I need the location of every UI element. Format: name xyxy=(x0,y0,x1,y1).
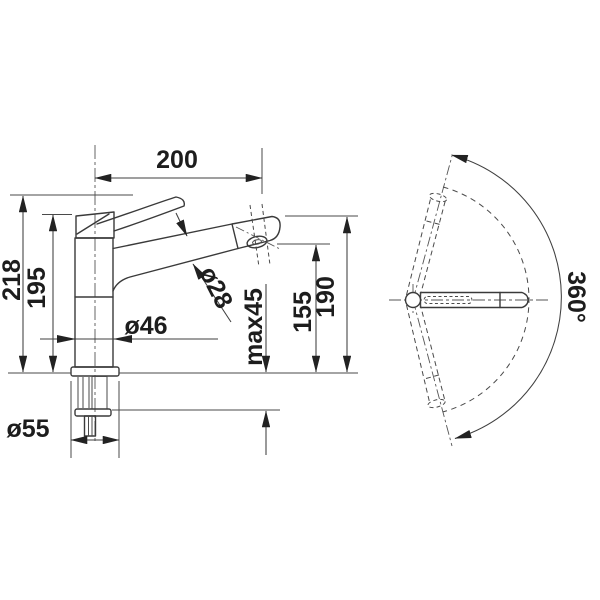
arrowhead xyxy=(57,335,76,343)
mounting-washer xyxy=(75,409,111,416)
drawing-page: 200 218 195 ø46 ø28 xyxy=(0,0,600,600)
dim-spout-reach: 200 xyxy=(95,146,262,194)
aerator-inner xyxy=(252,239,262,245)
edge xyxy=(420,200,446,297)
spout-plan-rotated-up xyxy=(407,192,448,297)
head-centerline xyxy=(236,227,280,249)
body-column xyxy=(75,238,113,367)
swivel-centerline-down xyxy=(413,300,452,446)
end-cap xyxy=(429,192,448,203)
top-view: 360° xyxy=(389,155,590,446)
spout-plan-rotated-down xyxy=(407,304,446,410)
dim-spout-reach-label: 200 xyxy=(156,146,198,174)
drawing-canvas: 200 218 195 ø46 ø28 xyxy=(0,0,600,600)
dim-swivel-range-label: 360° xyxy=(562,271,590,323)
dim-body-diameter-label: ø46 xyxy=(124,312,167,340)
swivel-path-circle xyxy=(443,187,529,412)
stud-thread-lines xyxy=(89,416,93,436)
swivel-hub xyxy=(406,293,421,308)
dim-counter-thickness-label: max45 xyxy=(240,288,268,366)
mounting-stud xyxy=(85,416,96,436)
cap-slant-line xyxy=(77,214,109,234)
edge xyxy=(420,304,445,400)
threaded-shank xyxy=(92,377,107,410)
dim-head-height-label: 190 xyxy=(312,276,340,318)
dimension-line-upper xyxy=(176,213,187,236)
dim-counter-thickness: max45 xyxy=(240,284,268,455)
dim-base-diameter: ø55 xyxy=(6,381,119,458)
dim-body-diameter: ø46 xyxy=(40,312,218,343)
swivel-centerline-up xyxy=(413,156,452,300)
dim-body-height-label: 195 xyxy=(23,267,51,309)
front-view: 200 218 195 ø46 ø28 xyxy=(0,145,358,458)
dim-base-diameter-label: ø55 xyxy=(6,415,49,443)
aerator-axis-dash-right xyxy=(262,204,270,265)
lever-handle xyxy=(97,197,184,231)
dim-body-height: 195 xyxy=(23,215,72,373)
spout-top-edge xyxy=(113,224,232,249)
pullout-head xyxy=(232,217,280,249)
supply-hoses xyxy=(78,377,89,408)
dim-spout-diameter-label: ø28 xyxy=(194,262,239,313)
end-cap xyxy=(427,398,446,409)
